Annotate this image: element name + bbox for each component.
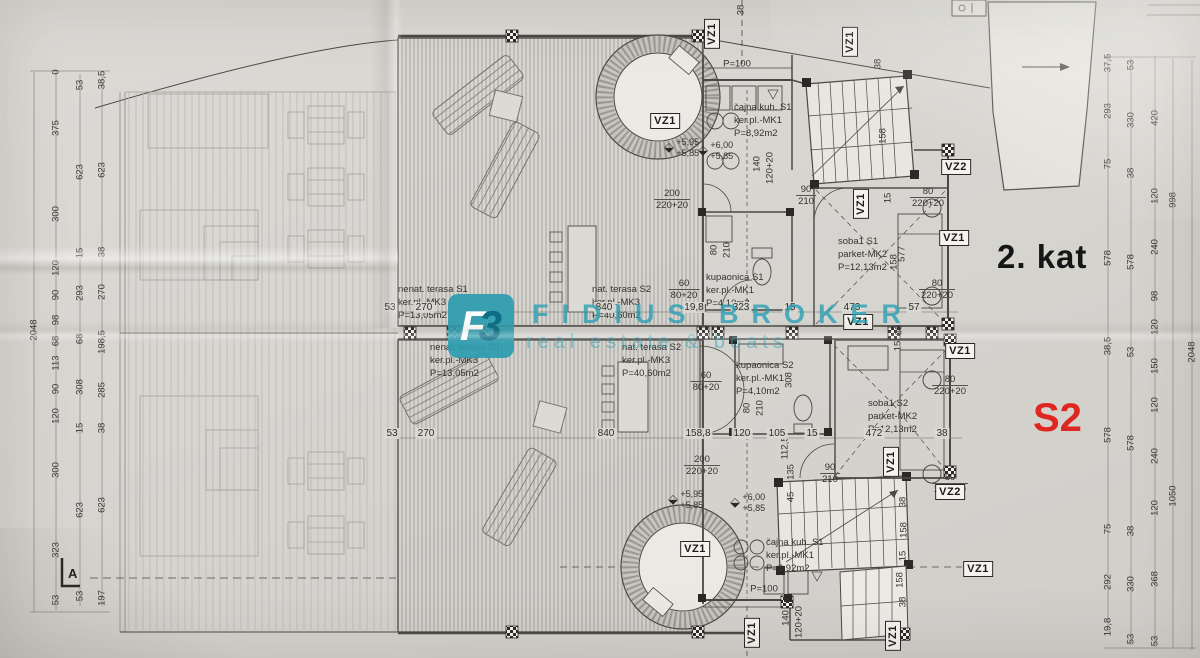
dimension-chain-label: 2048 [29, 319, 40, 340]
dimension-chain-label: 578 [1103, 427, 1114, 443]
elevation-value: +6,00 [710, 140, 733, 151]
dimension-value: 220+20 [932, 386, 968, 397]
elevation-mark: ◪+6,00+5,85 [699, 140, 733, 162]
vz-marker: VZ1 [883, 447, 899, 477]
dimension-label: 38 [898, 597, 909, 608]
dimension-chain-label: 68 [51, 336, 62, 347]
dimension-chain-label: 38,5 [97, 71, 108, 90]
dimension-chain-label: 293 [75, 285, 86, 301]
vz-marker: VZ1 [963, 561, 993, 577]
dimension-chain-label: 19,8 [1103, 618, 1114, 637]
dimension-chain-label: 285 [97, 382, 108, 398]
dimension-value: 80 [932, 472, 968, 484]
dimension-value: 80 [919, 278, 955, 290]
dimension-chain-label: 292 [1103, 574, 1114, 590]
dimension-chain-label: 37,5 [1103, 54, 1114, 73]
watermark-title: FIDIUS BROKER [532, 299, 914, 330]
floorplan-photo: 2. kat S2 A F3 FIDIUS BROKER real estate… [0, 0, 1200, 658]
dimension-chain-label: 0 [51, 69, 62, 74]
unit-label: S2 [1033, 396, 1082, 441]
dimension-chain-label: 75 [1103, 524, 1114, 535]
dimension-pair: 200220+20 [684, 454, 720, 477]
room-name: soba1 S2 [868, 398, 917, 411]
elevation-mark: ◪+5,95+5,85 [669, 489, 703, 511]
vz-marker: VZ1 [945, 343, 975, 359]
dimension-label: 120+20 [794, 606, 805, 638]
dimension-chain-label: 38 [1126, 168, 1137, 179]
dimension-label: 80 [709, 245, 720, 256]
dimension-chain-label: 120 [51, 260, 62, 276]
vz-marker: VZ1 [842, 27, 858, 57]
dimension-label: 38 [934, 428, 949, 439]
dimension-label: P=100 [750, 584, 778, 595]
room-label: čajna kuh. S1ker.pl.-MK1P=8,92m2 [734, 102, 792, 140]
dimension-chain-label: 308 [75, 379, 86, 395]
dimension-chain-label: 623 [97, 162, 108, 178]
dimension-label: 15 [883, 193, 894, 204]
dimension-chain-label: 578 [1126, 435, 1137, 451]
room-finish: parket-MK2 [868, 411, 917, 424]
elevation-diamond-icon: ◪ [663, 142, 675, 154]
dimension-value: 200 [654, 188, 690, 200]
dimension-chain-label: 420 [1150, 110, 1161, 126]
room-finish: ker.pl.-MK1 [734, 115, 792, 128]
dimension-chain-label: 1050 [1168, 485, 1179, 506]
vz-marker: VZ2 [935, 484, 965, 500]
dimension-label: 112,5 [780, 436, 791, 459]
fidius-broker-logo-icon: F3 [448, 294, 514, 358]
dimension-label: 577 [897, 246, 908, 262]
room-area: P=8,92m2 [766, 563, 824, 576]
vz-marker: VZ1 [650, 113, 680, 129]
dimension-chain-label: 578 [1126, 254, 1137, 270]
dimension-chain-label: 623 [75, 164, 86, 180]
room-finish: ker.pl.-MK3 [622, 355, 681, 368]
dimension-label: 210 [722, 242, 733, 258]
dimension-label: 158 [878, 128, 889, 144]
dimension-chain-label: 2048 [1187, 341, 1198, 362]
watermark-subtitle: real estate & boats [526, 331, 788, 354]
dimension-pair: 80220+20 [910, 186, 946, 209]
dimension-value: 210 [796, 196, 816, 207]
dimension-chain-label: 53 [75, 80, 86, 91]
dimension-label: 53 [382, 302, 397, 313]
dimension-value: 90 [796, 184, 816, 196]
dimension-chain-label: 323 [51, 542, 62, 558]
dimension-chain-label: 578 [1103, 250, 1114, 266]
dimension-chain-label: 330 [1126, 112, 1137, 128]
dimension-chain-label: 53 [1126, 634, 1137, 645]
spiral-stair-bottom [621, 505, 745, 629]
dimension-label: 38 [898, 497, 909, 508]
elevation-value: +6,00 [742, 492, 765, 503]
dimension-chain-label: 98 [1150, 291, 1161, 302]
dimension-label: 270 [414, 302, 435, 313]
dimension-chain-label: 38 [97, 247, 108, 258]
dimension-label: 158 [899, 522, 910, 538]
dimension-chain-label: 53 [1126, 60, 1137, 71]
vz-marker: VZ1 [680, 541, 710, 557]
room-finish: ker.pl.-MK1 [766, 550, 824, 563]
dimension-label: 120 [732, 428, 753, 439]
elevation-diamond-icon: ◪ [729, 497, 741, 509]
elevation-value: +5,85 [676, 148, 699, 159]
dimension-chain-label: 120 [51, 408, 62, 424]
dimension-chain-label: 120 [1150, 397, 1161, 413]
elevation-value: +5,85 [710, 151, 733, 162]
dimension-chain-label: 90 [51, 290, 62, 301]
dimension-chain-label: 623 [97, 497, 108, 513]
dimension-pair: 80220+20 [919, 278, 955, 301]
room-name: čajna kuh. S1 [734, 102, 792, 115]
dimension-chain-label: 75 [1103, 159, 1114, 170]
dimension-label: 53 [384, 428, 399, 439]
dimension-value: 60 [691, 370, 722, 382]
dimension-pair: 90210 [796, 184, 816, 207]
vz-marker: VZ1 [704, 19, 720, 49]
dimension-pair: 6080+20 [691, 370, 722, 393]
dimension-chain-label: 120 [1150, 188, 1161, 204]
dimension-chain-label: 120 [1150, 319, 1161, 335]
dimension-chain-label: 300 [51, 206, 62, 222]
dimension-label: 210 [755, 400, 766, 416]
dimension-chain-label: 198,5 [97, 330, 108, 354]
dimension-chain-label: 15 [75, 423, 86, 434]
dimension-chain-label: 330 [1126, 576, 1137, 592]
dimension-value: 60 [669, 278, 700, 290]
dimension-value: 220+20 [654, 200, 690, 211]
dimension-label: 140 [752, 156, 763, 172]
dimension-label: 38 [736, 5, 747, 16]
dimension-label: 105 [767, 428, 788, 439]
dimension-label: 38 [873, 59, 884, 70]
dimension-chain-label: 368 [1150, 571, 1161, 587]
dimension-chain-label: 98 [51, 315, 62, 326]
vz-marker: VZ2 [941, 159, 971, 175]
dimension-value: 80 [932, 374, 968, 386]
dimension-label: 15 [898, 551, 909, 562]
dimension-label: 120+20 [765, 152, 776, 184]
dimension-chain-label: 300 [51, 462, 62, 478]
dimension-chain-label: 15 [75, 248, 86, 259]
dimension-chain-label: 270 [97, 284, 108, 300]
dimension-chain-label: 240 [1150, 239, 1161, 255]
room-name: kupaonica S1 [706, 272, 764, 285]
dimension-chain-label: 623 [75, 502, 86, 518]
dimension-label: 840 [596, 428, 617, 439]
dimension-value: 90 [820, 462, 840, 474]
dimension-chain-label: 240 [1150, 448, 1161, 464]
elevation-diamond-icon: ◪ [667, 494, 679, 506]
room-finish: parket-MK2 [838, 249, 887, 262]
dimension-chain-label: 113 [51, 355, 62, 370]
vz-marker: VZ1 [939, 230, 969, 246]
dimension-label: 140 [781, 610, 792, 626]
vz-marker: VZ1 [744, 618, 760, 648]
elevation-diamond-icon: ◪ [697, 145, 709, 157]
dimension-pair: 200220+20 [654, 188, 690, 211]
room-label: čajna kuh. S1ker.pl.-MK1P=8,92m2 [766, 537, 824, 575]
dimension-pair: 80220+20 [932, 374, 968, 397]
dimension-value: 220+20 [684, 466, 720, 477]
dimension-chain-label: 293 [1103, 103, 1114, 119]
dimension-label: 80 [742, 403, 753, 414]
room-area: P=13,05m2 [430, 368, 500, 381]
dimension-label: 270 [416, 428, 437, 439]
dimension-label: 158,8 [683, 428, 712, 439]
room-name: kupaonica S2 [736, 360, 794, 373]
room-area: P=8,92m2 [734, 128, 792, 141]
dimension-value: 80 [910, 186, 946, 198]
vz-marker: VZ1 [853, 189, 869, 219]
elevation-value: +5,85 [742, 503, 765, 514]
room-name: čajna kuh. S1 [766, 537, 824, 550]
elevation-value: +5,95 [676, 137, 699, 148]
room-area: P=12,13m2 [838, 262, 887, 275]
room-finish: ker.pl.-MK1 [706, 285, 764, 298]
dimension-value: 210 [820, 474, 840, 485]
dimension-chain-label: 38 [1126, 526, 1137, 537]
vz-marker: VZ1 [885, 621, 901, 651]
dimension-pair: 90210 [820, 462, 840, 485]
dimension-value: 200 [684, 454, 720, 466]
dimension-chain-label: 90 [51, 384, 62, 395]
section-marker-label: A [68, 566, 77, 581]
dimension-label: 158 [895, 572, 906, 588]
room-label: soba1 S1parket-MK2P=12,13m2 [838, 236, 887, 274]
dimension-chain-label: 53 [51, 595, 62, 606]
dimension-chain-label: 53 [1150, 636, 1161, 647]
floor-label: 2. kat [997, 238, 1087, 276]
dimension-chain-label: 375 [51, 120, 62, 136]
dimension-label: 15 [804, 428, 819, 439]
dimension-label: 308 [784, 372, 795, 388]
dimension-chain-label: 197 [97, 590, 108, 606]
folded-page-corner [988, 2, 1096, 190]
dimension-label: 472 [864, 428, 885, 439]
elevation-mark: ◪+5,95+5,85 [665, 137, 699, 159]
dimension-value: 80+20 [691, 382, 722, 393]
dimension-label: 15 [893, 341, 904, 352]
dimension-chain-label: 38,5 [1103, 337, 1114, 356]
dimension-chain-label: 68 [75, 334, 86, 345]
elevation-mark: ◪+6,00+5,85 [731, 492, 765, 514]
dimension-chain-label: 53 [1126, 347, 1137, 358]
room-area: P=40,60m2 [622, 368, 681, 381]
elevation-value: +5,95 [680, 489, 703, 500]
room-name: nat. terasa S2 [592, 284, 651, 297]
dimension-value: 220+20 [910, 198, 946, 209]
dimension-label: 135 [786, 464, 797, 480]
dimension-value: 220+20 [919, 290, 955, 301]
dimension-chain-label: 998 [1168, 192, 1179, 208]
dimension-label: P=100 [723, 59, 751, 70]
elevation-value: +5,85 [680, 500, 703, 511]
dimension-chain-label: 120 [1150, 500, 1161, 516]
dimension-chain-label: 53 [75, 591, 86, 602]
dimension-label: 45 [786, 492, 797, 503]
room-name: soba1 S1 [838, 236, 887, 249]
logo-glyph-3: 3 [479, 305, 502, 347]
dimension-pair: 6080+20 [669, 278, 700, 301]
dimension-chain-label: 150 [1150, 358, 1161, 374]
dimension-chain-label: 38 [97, 423, 108, 434]
